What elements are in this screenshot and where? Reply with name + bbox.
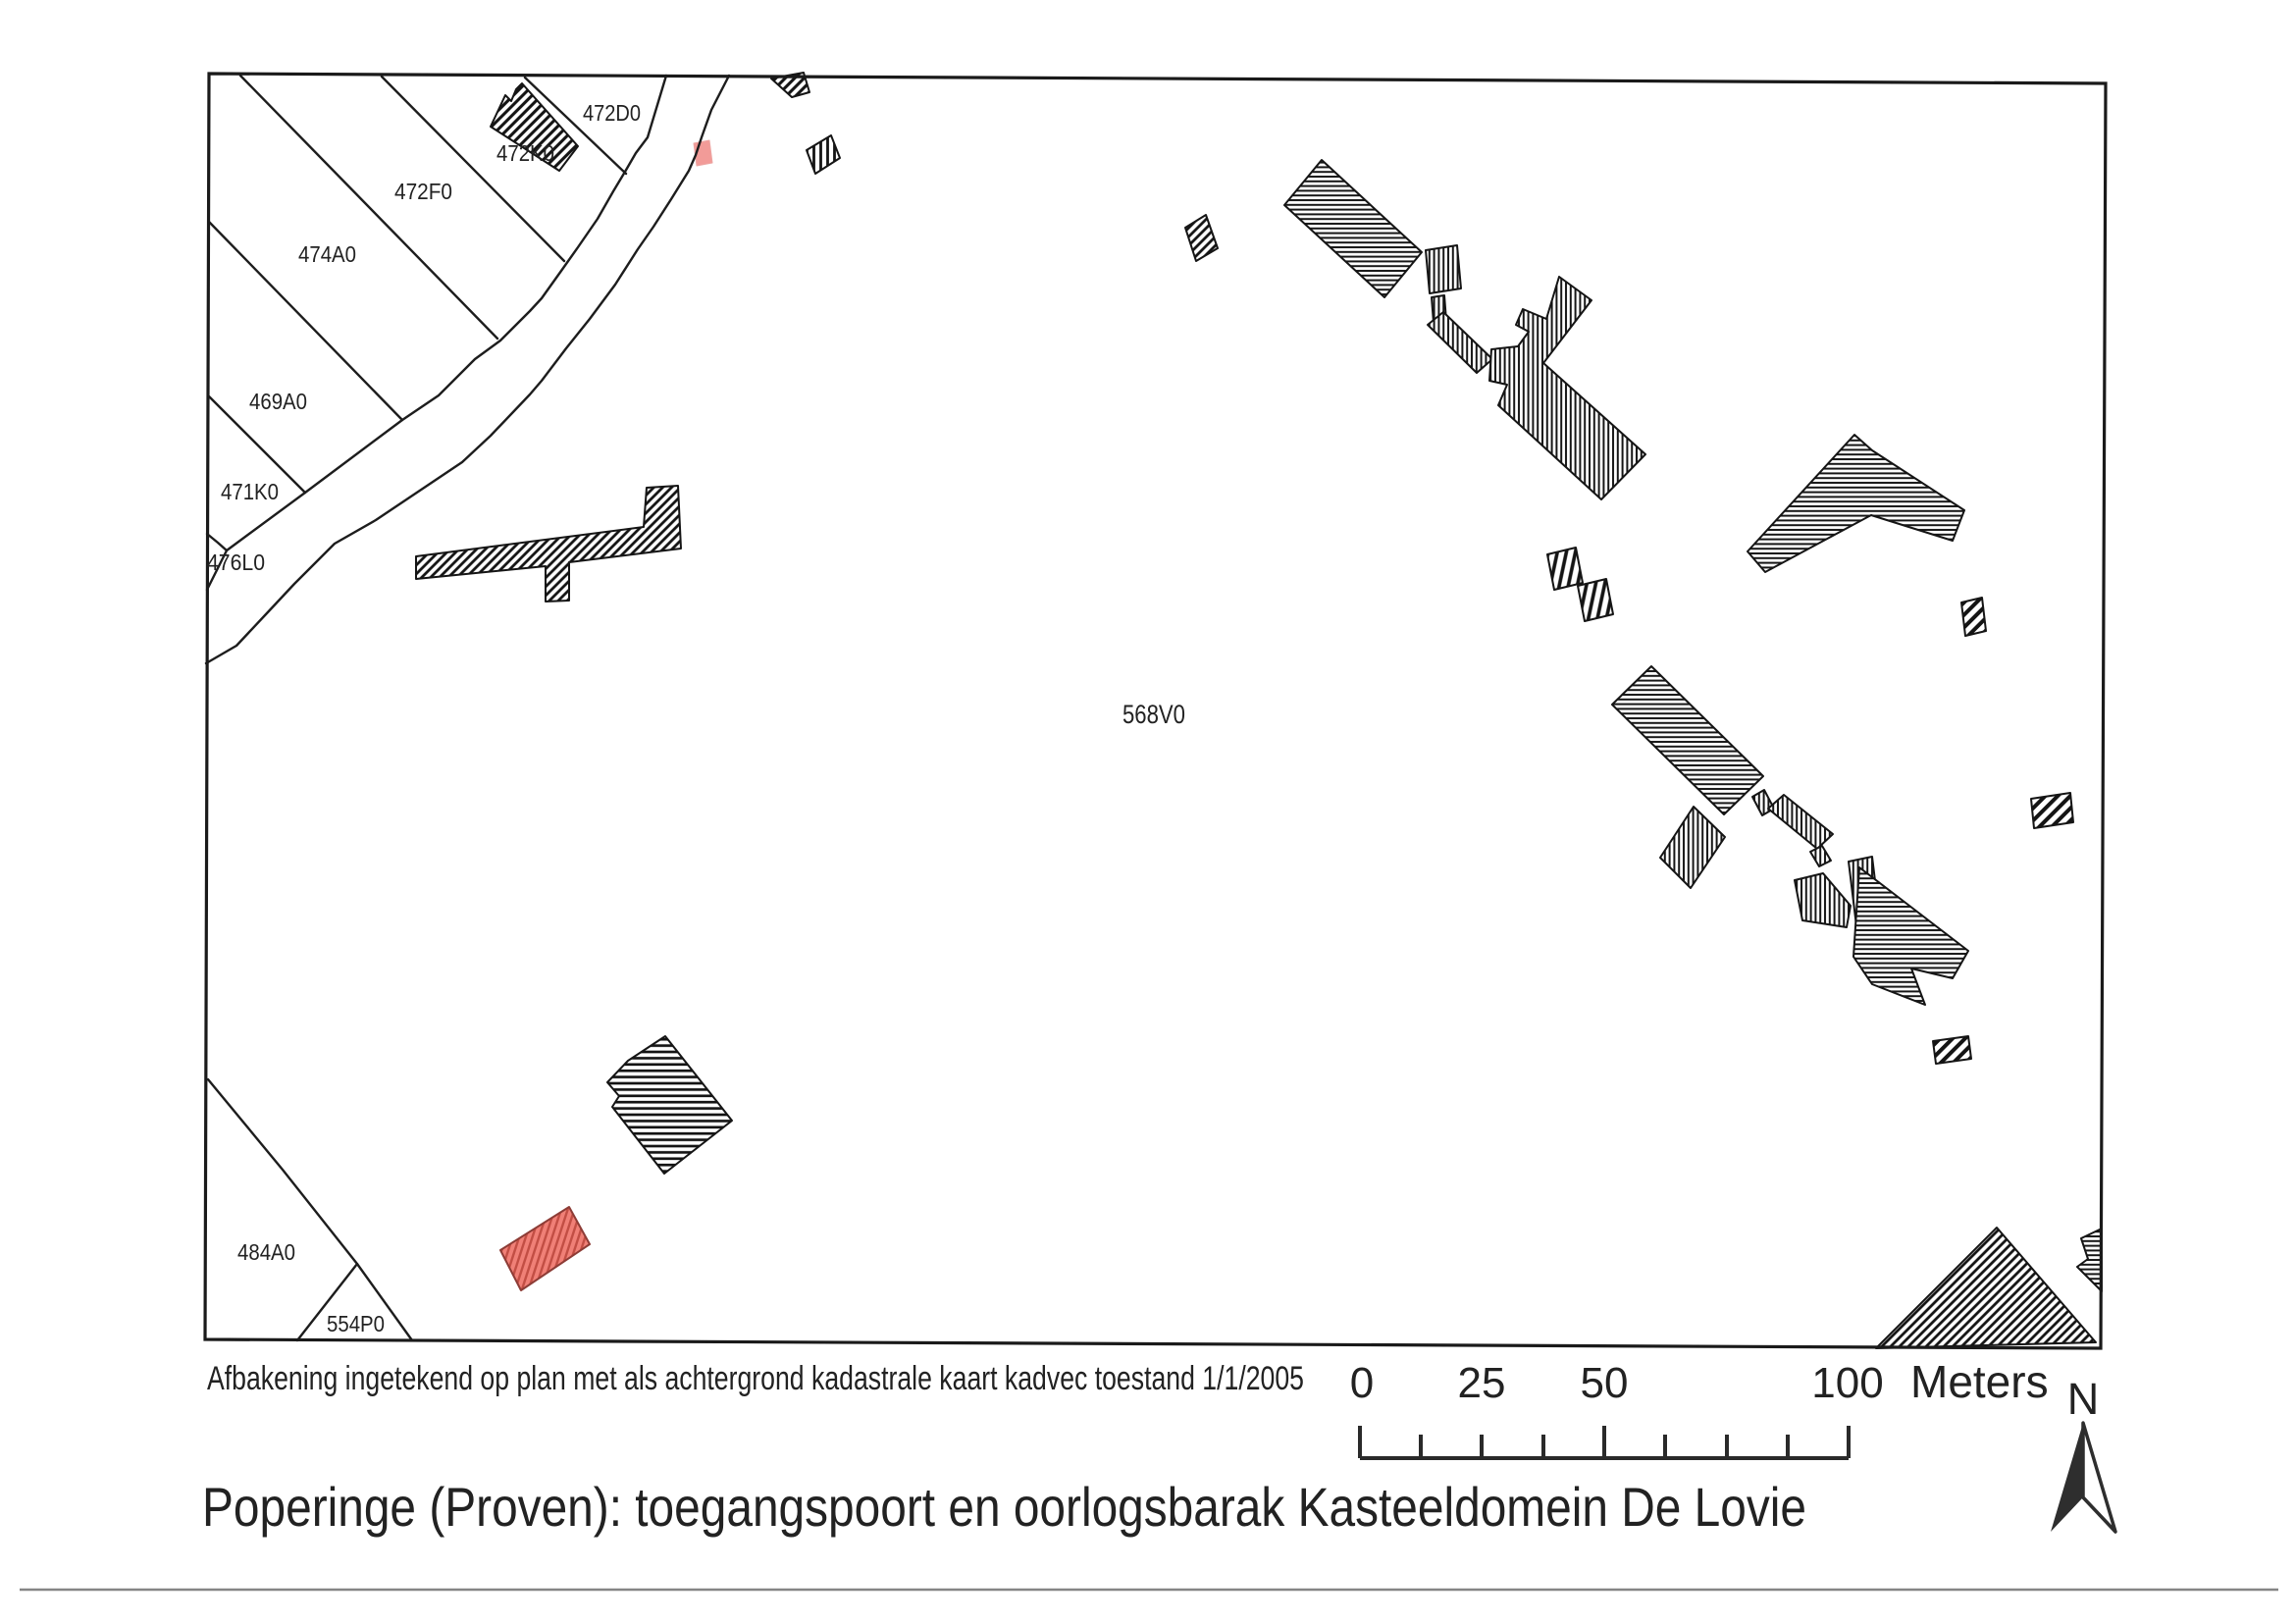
svg-text:476L0: 476L0 [207, 550, 265, 575]
svg-text:471K0: 471K0 [221, 479, 279, 504]
svg-text:472F0: 472F0 [394, 179, 452, 204]
svg-text:472D0: 472D0 [583, 100, 641, 126]
svg-text:Meters: Meters [1910, 1356, 2049, 1407]
svg-text:469A0: 469A0 [249, 389, 307, 414]
svg-text:554P0: 554P0 [327, 1311, 385, 1336]
svg-text:25: 25 [1458, 1359, 1506, 1407]
svg-text:0: 0 [1350, 1359, 1374, 1407]
svg-text:Afbakening ingetekend op plan: Afbakening ingetekend op plan met als ac… [207, 1360, 1304, 1397]
svg-text:N: N [2067, 1374, 2100, 1424]
svg-text:Poperinge (Proven): toegangspo: Poperinge (Proven): toegangspoort en oor… [202, 1476, 1806, 1538]
svg-text:100: 100 [1811, 1359, 1883, 1407]
svg-text:472K0: 472K0 [496, 140, 554, 166]
svg-text:484A0: 484A0 [237, 1239, 295, 1265]
svg-text:50: 50 [1581, 1359, 1629, 1407]
svg-text:568V0: 568V0 [1122, 700, 1185, 729]
svg-text:474A0: 474A0 [298, 241, 356, 267]
